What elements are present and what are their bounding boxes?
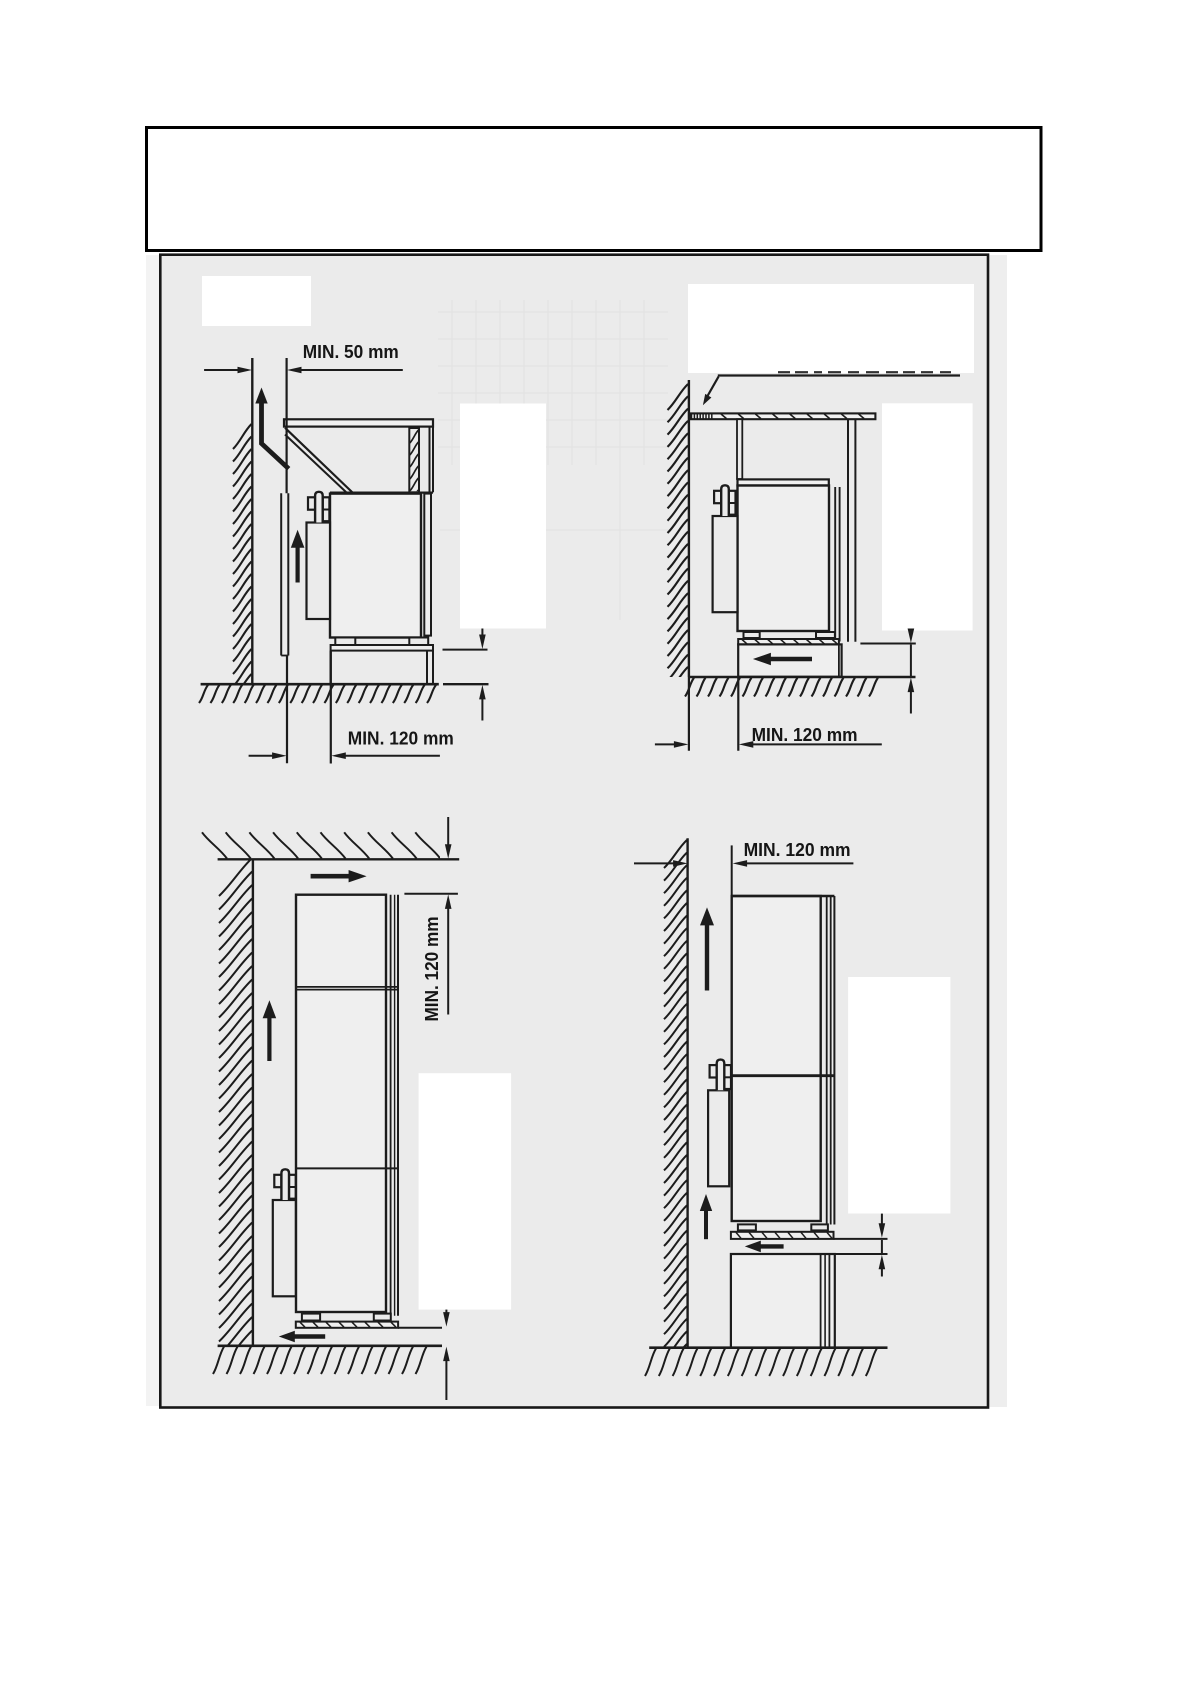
svg-text:MIN. 120 mm: MIN. 120 mm [348,727,454,748]
svg-text:MIN. 50 mm: MIN. 50 mm [303,341,399,362]
svg-text:MIN. 120 mm: MIN. 120 mm [752,724,858,745]
svg-text:MIN. 120 mm: MIN. 120 mm [421,917,442,1022]
svg-text:MIN. 120 mm: MIN. 120 mm [744,839,851,860]
